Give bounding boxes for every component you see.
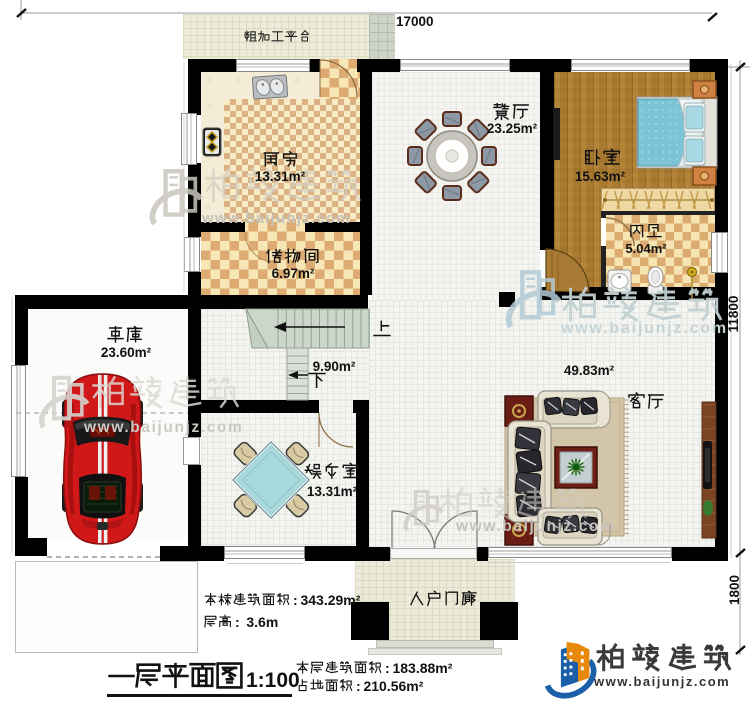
svg-text:: 3.6m: : 3.6m	[235, 614, 278, 630]
svg-text:49.83m²: 49.83m²	[564, 363, 615, 378]
svg-text:15.63m²: 15.63m²	[575, 169, 626, 184]
svg-text:17000: 17000	[396, 14, 434, 29]
svg-text:www.baijunjz.com: www.baijunjz.com	[83, 419, 243, 436]
svg-text:11800: 11800	[726, 296, 741, 333]
svg-text:1:100: 1:100	[246, 669, 300, 692]
svg-text:6.97m²: 6.97m²	[272, 266, 315, 281]
svg-text:13.31m²: 13.31m²	[307, 484, 358, 499]
svg-text:www.baijunjz.com: www.baijunjz.com	[560, 320, 728, 337]
svg-text:13.31m²: 13.31m²	[255, 169, 306, 184]
svg-text:23.60m²: 23.60m²	[101, 345, 152, 360]
svg-text:1800: 1800	[727, 575, 742, 605]
svg-text:23.25m²: 23.25m²	[487, 121, 538, 136]
svg-text:: 183.88m²: : 183.88m²	[385, 660, 453, 676]
svg-text:: 210.56m²: : 210.56m²	[356, 678, 424, 694]
svg-text:5.04m²: 5.04m²	[625, 241, 667, 256]
svg-text:9.90m²: 9.90m²	[313, 359, 356, 374]
svg-text:www.baijunjz.com: www.baijunjz.com	[455, 518, 615, 535]
svg-text:: 343.29m²: : 343.29m²	[293, 592, 361, 608]
svg-text:www.baijunjz.com: www.baijunjz.com	[593, 674, 730, 689]
svg-text:www.baijunjz.com: www.baijunjz.com	[201, 210, 351, 227]
